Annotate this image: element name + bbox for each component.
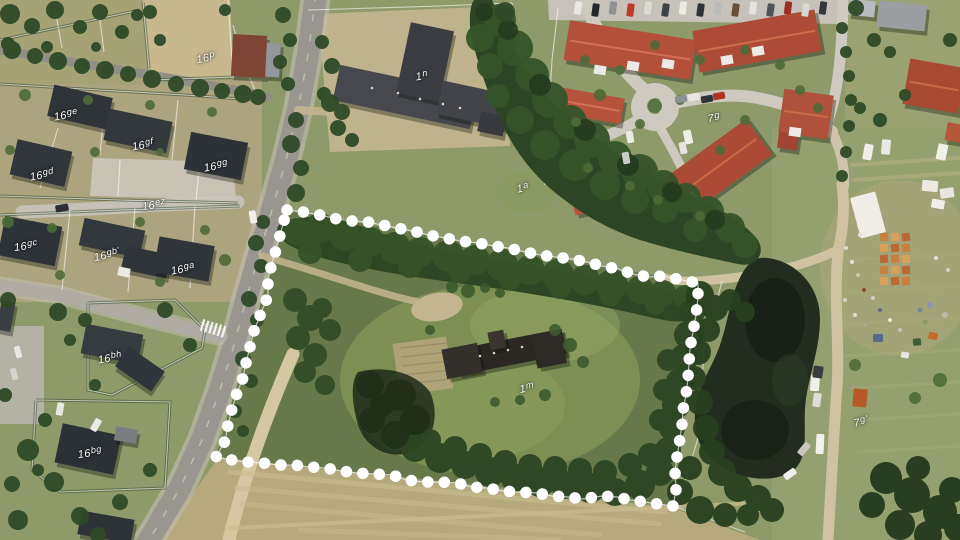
vehicle [812,365,824,378]
market-stall [880,255,889,264]
market-stall [902,244,911,253]
market-stall [880,277,889,286]
market-stall [891,277,900,286]
vehicle [881,139,891,155]
market-tent [922,180,939,192]
market-tent [873,334,883,342]
white-canopy [593,65,606,76]
market-tent [913,338,922,346]
building-roof [231,34,267,78]
vehicle [815,434,824,454]
market-stall [902,277,911,286]
market-stall [891,233,900,242]
aerial-map-screenshot: 16p16ge16gf16gd16gg16ez16gc16gb'16ga16bh… [0,0,960,540]
market-tent [939,187,954,199]
white-canopy [661,59,674,70]
white-canopy [626,61,639,72]
market-stall [891,266,900,275]
market-stall [902,255,911,264]
white-canopy [788,127,801,138]
market-stall [891,244,900,253]
market-tent [901,351,910,358]
building-roof [487,330,506,351]
market-stall [880,233,889,242]
building-roof [531,329,567,368]
market-stall [902,266,911,275]
market-stall [902,233,911,242]
building-roof [877,1,927,32]
market-stall [891,255,900,264]
market-stall [880,244,889,253]
aerial-photo [0,0,960,540]
vehicle [852,388,868,407]
market-stall [880,266,889,275]
